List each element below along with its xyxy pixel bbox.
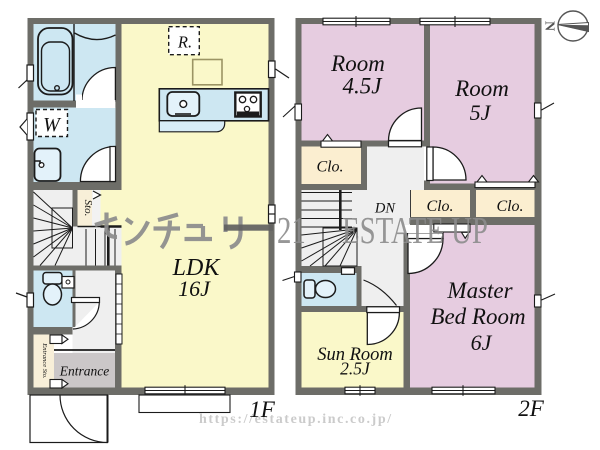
svg-text:Bed Room: Bed Room (430, 304, 525, 329)
svg-text:2F: 2F (518, 396, 545, 421)
svg-text:W: W (43, 114, 62, 136)
svg-text:Clo.: Clo. (316, 159, 343, 176)
svg-text:16J: 16J (178, 276, 211, 301)
svg-text:Entrance: Entrance (59, 364, 110, 379)
svg-text:https://estateup.inc.co.jp/: https://estateup.inc.co.jp/ (199, 412, 393, 427)
svg-text:Sto.: Sto. (82, 200, 94, 217)
svg-text:Master: Master (446, 278, 513, 303)
svg-text:N: N (542, 21, 557, 31)
svg-text:Clo.: Clo. (496, 198, 523, 215)
svg-text:Room: Room (330, 51, 385, 76)
svg-text:Room: Room (454, 76, 509, 101)
svg-text:2.5J: 2.5J (340, 359, 371, 379)
svg-text:6J: 6J (471, 330, 493, 355)
svg-text:Entrance Sto.: Entrance Sto. (41, 342, 48, 379)
svg-text:4.5J: 4.5J (343, 74, 384, 99)
svg-text:5J: 5J (470, 100, 492, 125)
svg-text:1F: 1F (249, 397, 276, 422)
svg-text:R.: R. (177, 33, 192, 52)
svg-text:21 ESTATE UP: 21 ESTATE UP (277, 210, 488, 252)
